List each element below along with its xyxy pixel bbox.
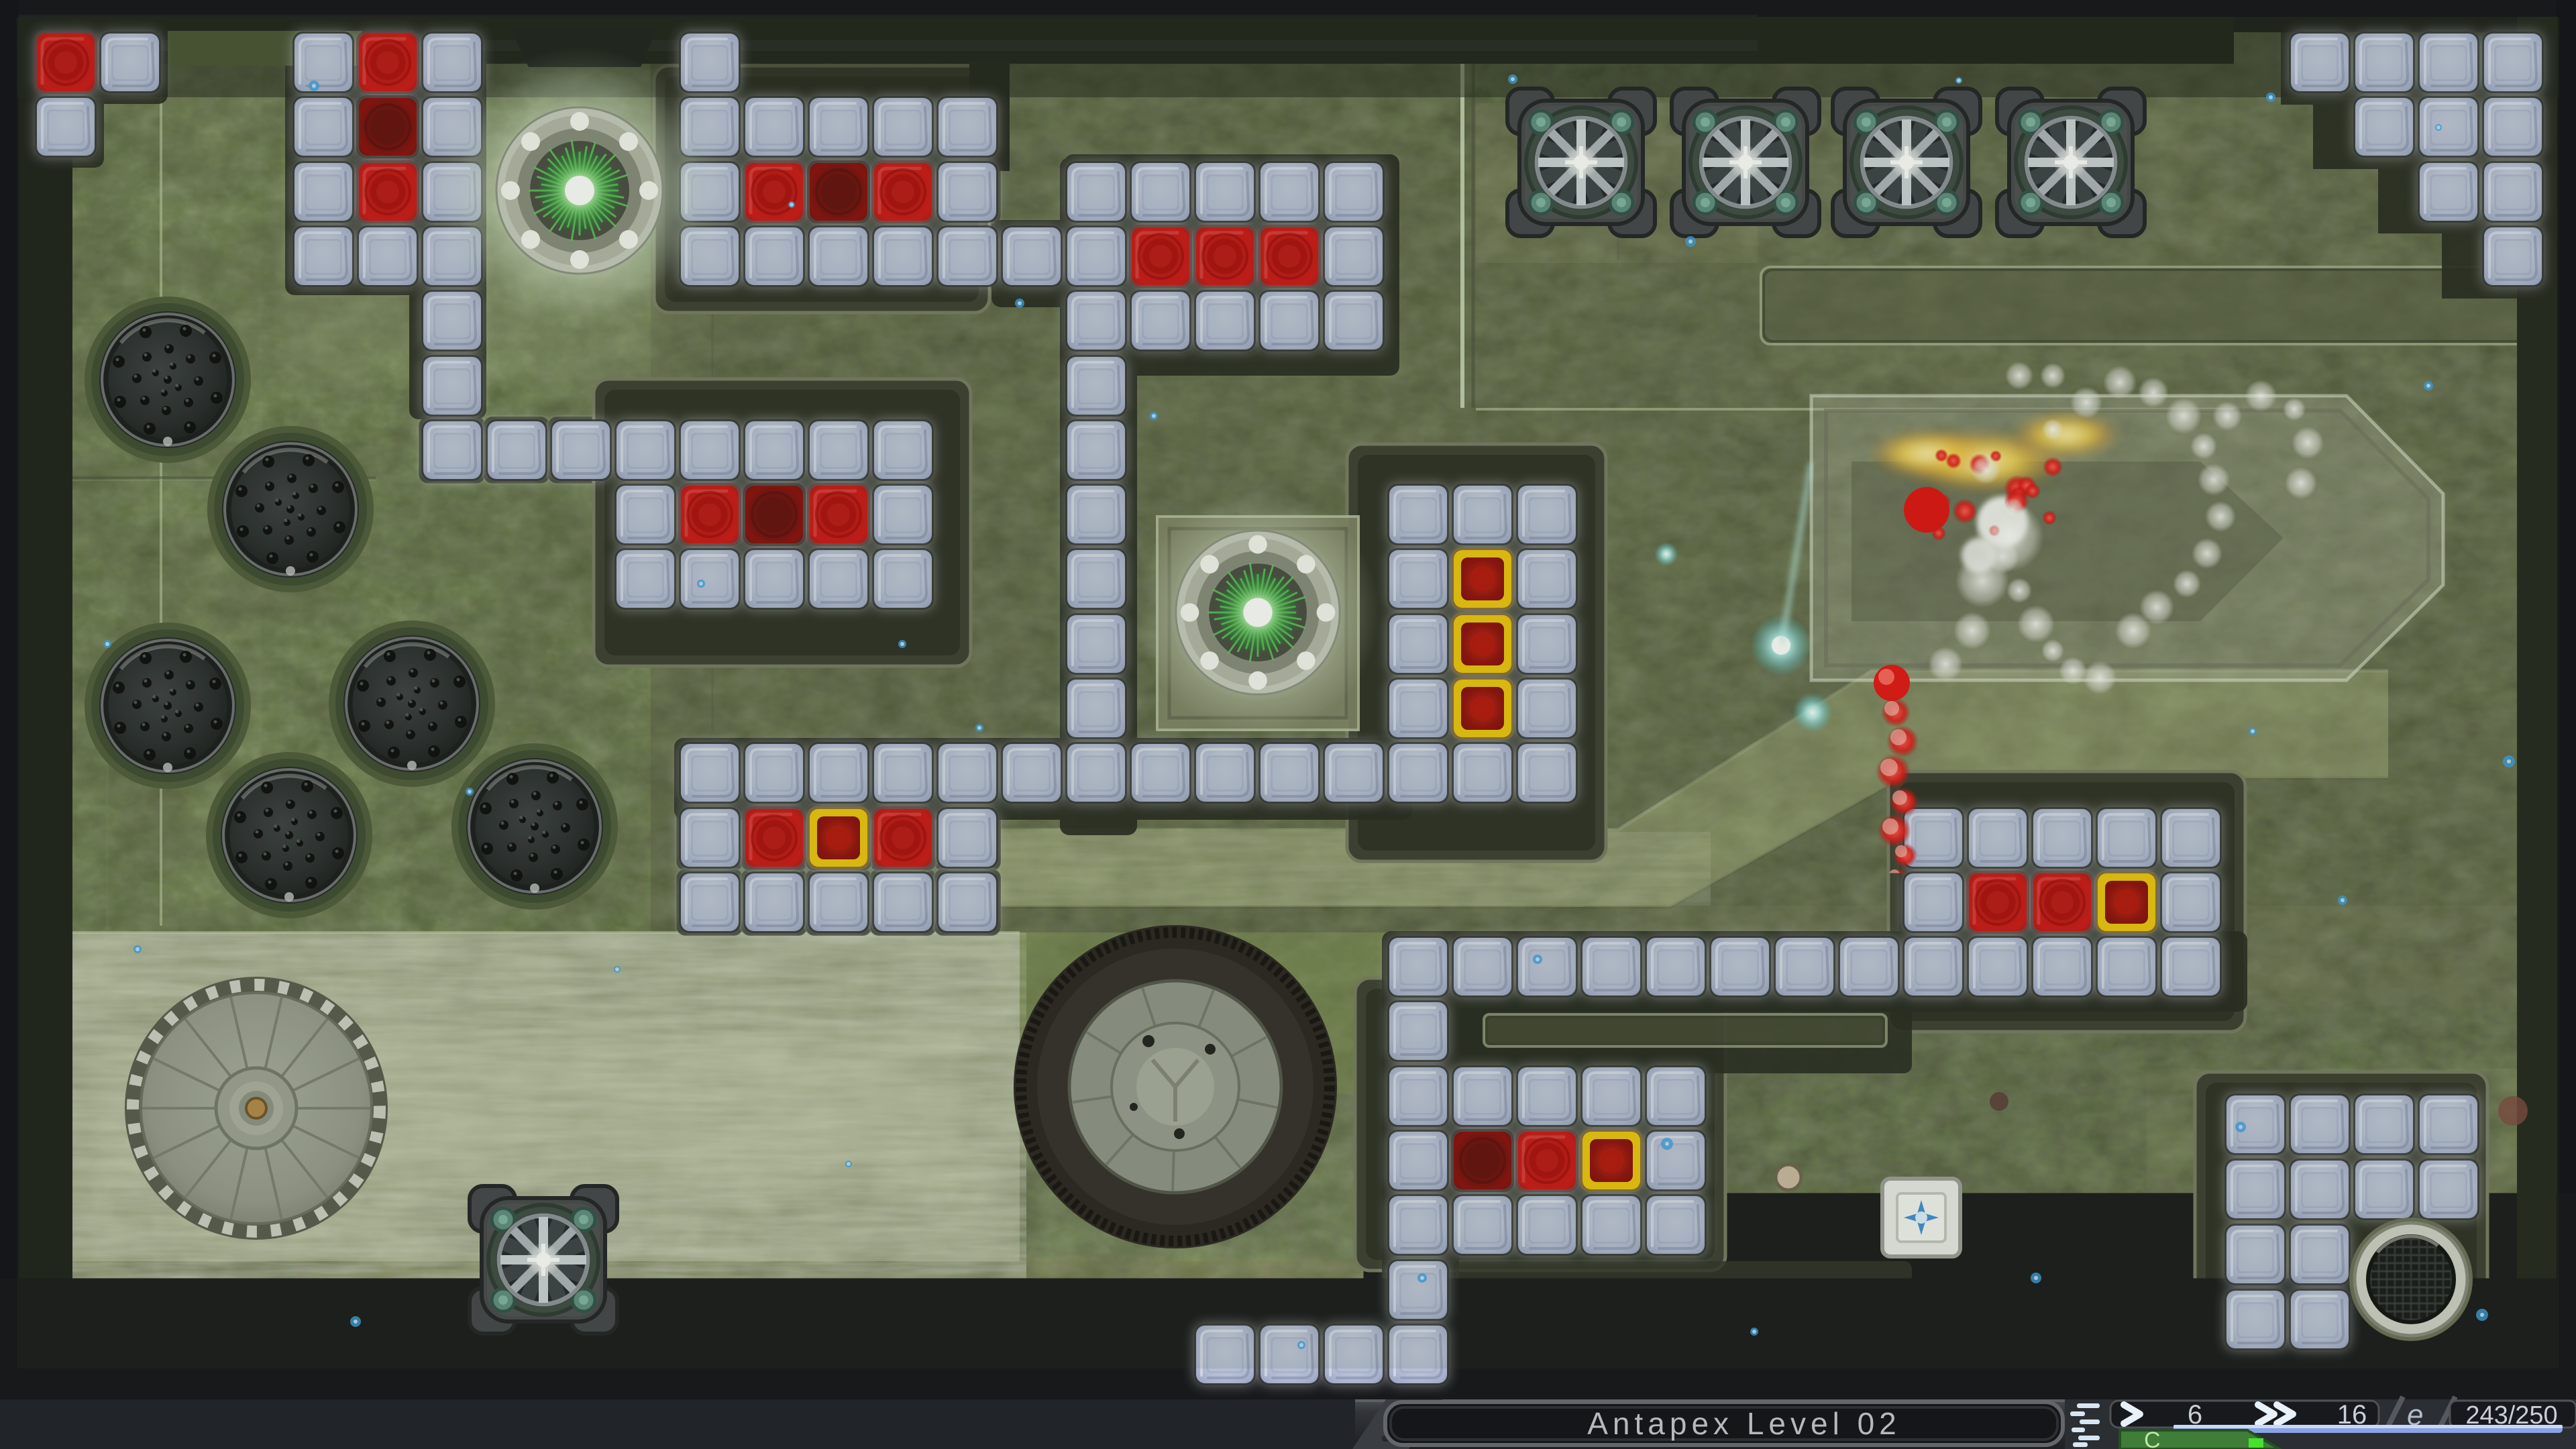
svg-text:C: C: [2144, 1428, 2161, 1449]
svg-text:Antapex Level 02: Antapex Level 02: [1587, 1406, 1901, 1441]
